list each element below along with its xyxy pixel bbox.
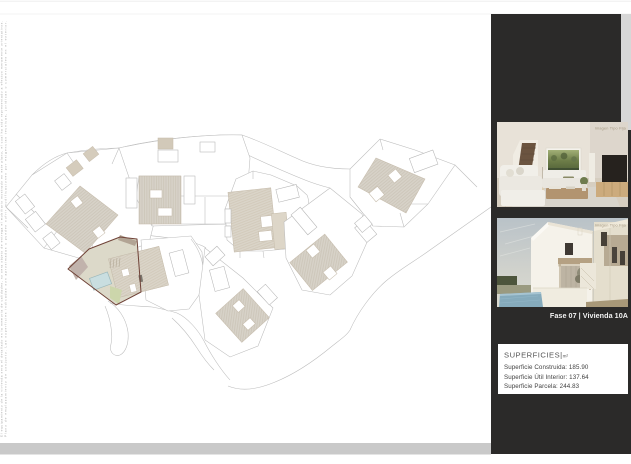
svg-text:Superficie Parcela: 244.83: Superficie Parcela: 244.83 — [504, 383, 580, 390]
svg-text:Superficie Construida: 185.90: Superficie Construida: 185.90 — [504, 364, 589, 371]
svg-text:Fase 07 | Vivienda 10A: Fase 07 | Vivienda 10A — [550, 311, 628, 320]
svg-text:Imagen Tipo Fija: Imagen Tipo Fija — [595, 224, 627, 228]
svg-text:Plano de emplazamiento de conj: Plano de emplazamiento de conjunto. Las … — [4, 21, 8, 437]
svg-text:Imagen Tipo Fija: Imagen Tipo Fija — [595, 127, 627, 131]
svg-text:SUPERFICIES|m²: SUPERFICIES|m² — [504, 351, 569, 360]
svg-text:Superficie Útil Interior: 137.: Superficie Útil Interior: 137.64 — [504, 374, 589, 381]
